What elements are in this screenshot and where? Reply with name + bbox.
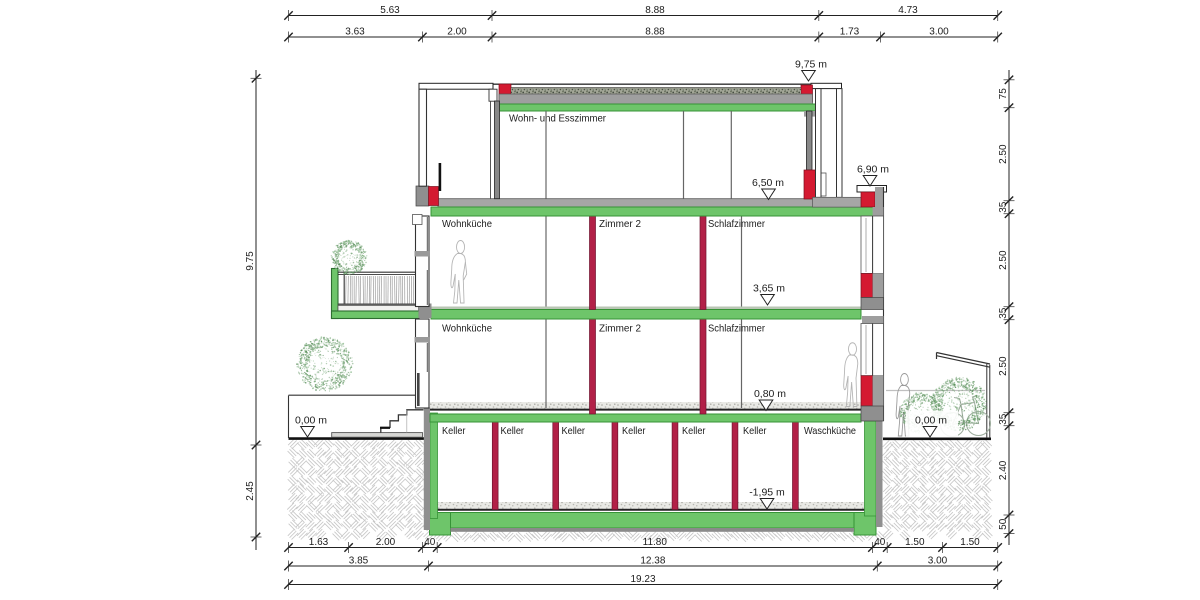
- svg-text:8.88: 8.88: [645, 5, 665, 16]
- svg-text:Zimmer 2: Zimmer 2: [599, 323, 641, 335]
- svg-text:0,00 m: 0,00 m: [295, 415, 327, 427]
- svg-text:Schlafzimmer: Schlafzimmer: [708, 218, 765, 230]
- svg-text:Waschküche: Waschküche: [804, 425, 856, 437]
- svg-text:Keller: Keller: [442, 425, 466, 437]
- svg-text:75: 75: [998, 88, 1009, 100]
- svg-text:2.00: 2.00: [447, 27, 467, 38]
- svg-text:3,65 m: 3,65 m: [753, 283, 785, 295]
- svg-text:Wohnküche: Wohnküche: [442, 323, 492, 335]
- svg-text:12.38: 12.38: [640, 556, 665, 567]
- svg-text:Keller: Keller: [743, 425, 767, 437]
- svg-text:1.63: 1.63: [309, 537, 329, 548]
- svg-text:6,50 m: 6,50 m: [752, 177, 784, 189]
- svg-text:2.45: 2.45: [245, 481, 256, 501]
- svg-text:Keller: Keller: [622, 425, 646, 437]
- svg-text:2.50: 2.50: [998, 250, 1009, 270]
- svg-text:40: 40: [424, 537, 436, 548]
- svg-text:5.63: 5.63: [380, 5, 400, 16]
- svg-text:35: 35: [998, 307, 1009, 319]
- svg-text:1.50: 1.50: [905, 537, 925, 548]
- svg-text:Wohn- und Esszimmer: Wohn- und Esszimmer: [509, 113, 606, 125]
- svg-text:9,75 m: 9,75 m: [795, 59, 827, 71]
- svg-text:2.50: 2.50: [998, 144, 1009, 164]
- svg-text:35: 35: [998, 201, 1009, 213]
- svg-text:9.75: 9.75: [245, 251, 256, 271]
- svg-text:Zimmer 2: Zimmer 2: [599, 218, 641, 230]
- svg-text:Wohnküche: Wohnküche: [442, 218, 492, 230]
- svg-text:3.00: 3.00: [928, 556, 948, 567]
- svg-text:1.50: 1.50: [960, 537, 980, 548]
- svg-text:Schlafzimmer: Schlafzimmer: [708, 323, 765, 335]
- svg-text:1.73: 1.73: [840, 27, 860, 38]
- svg-text:4.73: 4.73: [898, 5, 918, 16]
- svg-text:2.40: 2.40: [998, 460, 1009, 480]
- svg-text:8.88: 8.88: [645, 27, 665, 38]
- svg-text:2.50: 2.50: [998, 356, 1009, 376]
- svg-text:50: 50: [998, 518, 1009, 530]
- svg-text:Keller: Keller: [682, 425, 706, 437]
- svg-text:3.00: 3.00: [929, 27, 949, 38]
- svg-text:0,80 m: 0,80 m: [754, 388, 786, 400]
- svg-text:0,00 m: 0,00 m: [915, 415, 947, 427]
- svg-text:40: 40: [874, 537, 886, 548]
- svg-text:19.23: 19.23: [630, 574, 655, 585]
- svg-text:3.63: 3.63: [345, 27, 365, 38]
- svg-text:2.00: 2.00: [376, 537, 396, 548]
- svg-text:Keller: Keller: [501, 425, 525, 437]
- svg-text:Keller: Keller: [562, 425, 586, 437]
- svg-text:6,90 m: 6,90 m: [857, 164, 889, 176]
- svg-text:-1,95 m: -1,95 m: [749, 487, 785, 499]
- svg-text:35: 35: [998, 413, 1009, 425]
- svg-text:3.85: 3.85: [349, 556, 369, 567]
- svg-text:11.80: 11.80: [643, 537, 668, 548]
